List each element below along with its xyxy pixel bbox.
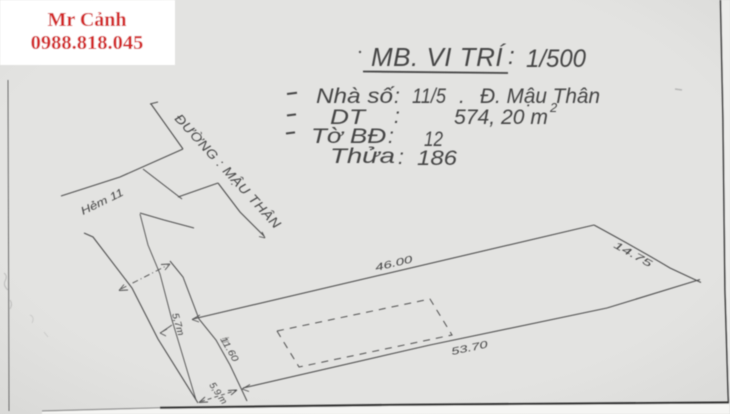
- svg-text:Mr Cảnh: Mr Cảnh: [47, 9, 126, 31]
- svg-text::: :: [508, 43, 515, 70]
- svg-text::: :: [394, 105, 400, 128]
- svg-text::: :: [398, 146, 404, 169]
- svg-text:574, 20 m: 574, 20 m: [454, 106, 548, 129]
- svg-text:Nhà số: Nhà số: [316, 85, 396, 108]
- svg-text:1/500: 1/500: [526, 45, 586, 73]
- svg-text:2: 2: [549, 100, 558, 115]
- svg-text:186: 186: [417, 147, 457, 170]
- svg-text:Thửa: Thửa: [330, 145, 395, 168]
- svg-text:11/5: 11/5: [412, 85, 446, 108]
- svg-text:.: .: [459, 85, 465, 108]
- svg-text:0988.818.045: 0988.818.045: [31, 32, 144, 54]
- svg-text:Đ. Mậu Thân: Đ. Mậu Thân: [480, 85, 600, 108]
- svg-text:MB. VI TRÍ: MB. VI TRÍ: [371, 42, 506, 72]
